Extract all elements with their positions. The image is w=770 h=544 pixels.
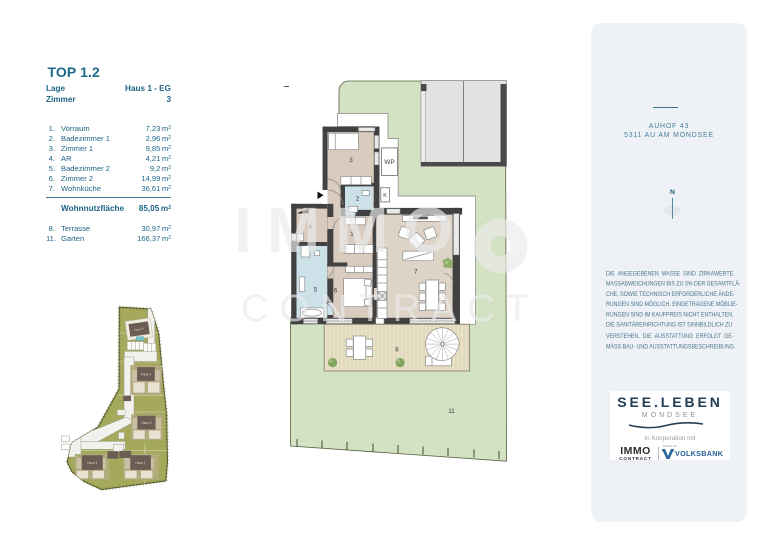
svg-text:7: 7 — [414, 269, 418, 276]
svg-text:IMMO: IMMO — [234, 194, 468, 266]
svg-text:Haus 2: Haus 2 — [135, 461, 145, 465]
svg-text:Haus 3: Haus 3 — [141, 421, 151, 425]
svg-text:3: 3 — [349, 157, 353, 164]
svg-text:WP: WP — [384, 159, 394, 166]
svg-text:CONTRACT: CONTRACT — [241, 288, 540, 330]
svg-text:Haus 1: Haus 1 — [87, 461, 97, 465]
svg-text:Haus 4: Haus 4 — [141, 373, 151, 377]
svg-text:8: 8 — [395, 347, 399, 354]
svg-text:11: 11 — [448, 408, 455, 415]
